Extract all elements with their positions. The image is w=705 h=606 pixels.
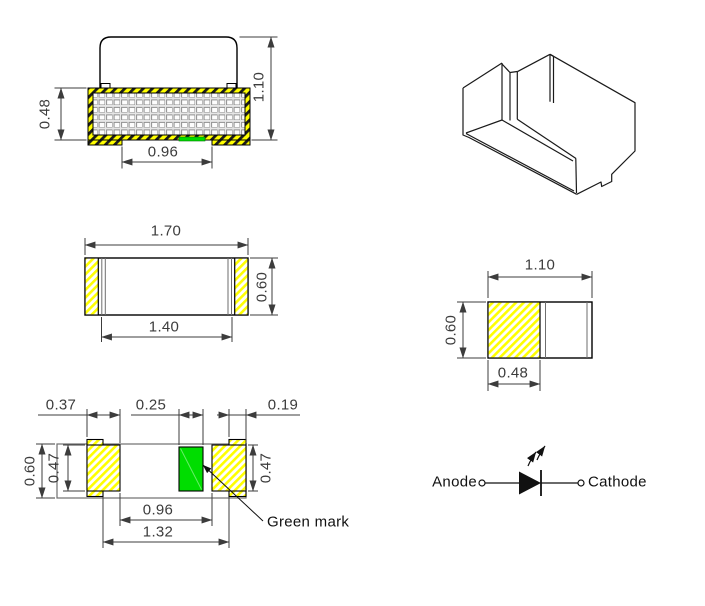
- anode-terminal-dot: [479, 480, 485, 486]
- top-terminal-left: [86, 259, 99, 315]
- side-terminal-region: [489, 303, 540, 358]
- anode-label: Anode: [432, 474, 477, 491]
- side-dim-length-label: 1.10: [525, 257, 555, 274]
- cathode-terminal-dot: [578, 480, 584, 486]
- bottom-dim-047-right-lines: [248, 445, 258, 491]
- front-dim-total-height-label: 1.10: [251, 72, 268, 102]
- bottom-dim-terminal-span-label: 1.32: [143, 524, 173, 541]
- led-symbol-drawing: [479, 446, 584, 496]
- green-mark-label: Green mark: [267, 514, 349, 531]
- top-dim-170-lines: [85, 238, 248, 255]
- bottom-dim-pad-height-left-label: 0.47: [46, 453, 63, 483]
- side-dim-060-lines: [457, 302, 486, 358]
- side-dim-terminal-width-label: 0.48: [498, 365, 528, 382]
- cathode-label: Cathode: [588, 474, 647, 491]
- front-emitter-grid: [93, 93, 245, 135]
- technical-drawing-canvas: [0, 0, 705, 606]
- top-view-drawing: [85, 238, 278, 342]
- front-green-mark: [179, 137, 205, 141]
- bottom-dim-025-lines: [131, 409, 203, 445]
- top-body-outline: [85, 258, 248, 315]
- front-dim-048-lines: [55, 88, 86, 140]
- bottom-dim-037-lines: [38, 409, 120, 443]
- top-dim-length-label: 1.70: [151, 223, 181, 240]
- isometric-view-drawing: [463, 54, 635, 194]
- front-pad-left: [88, 140, 122, 145]
- top-dim-body-length-label: 1.40: [149, 319, 179, 336]
- front-dim-pad-gap-label: 0.96: [148, 144, 178, 161]
- front-dim-terminal-height-label: 0.48: [37, 99, 54, 129]
- side-dim-110-lines: [488, 271, 592, 298]
- bottom-pad-left: [87, 445, 120, 491]
- bottom-dim-pad-gap-label: 0.96: [143, 502, 173, 519]
- bottom-pad-right: [212, 445, 246, 491]
- front-pad-right: [212, 140, 250, 145]
- bottom-dim-019-lines: [217, 409, 300, 443]
- side-dim-height-label: 0.60: [443, 315, 460, 345]
- bottom-dim-body-width-label: 0.60: [22, 456, 39, 486]
- bottom-dim-wrap-width-label: 0.19: [268, 397, 298, 414]
- bottom-dim-pad-width-label: 0.37: [46, 397, 76, 414]
- bottom-dim-pad-height-right-label: 0.47: [258, 453, 275, 483]
- top-dim-width-label: 0.60: [254, 272, 271, 302]
- top-terminal-right: [235, 259, 248, 315]
- diode-triangle: [519, 472, 541, 495]
- technical-drawing-page: 0.48 1.10 0.96 1.70 0.60 1.40 1.10 0.60 …: [0, 0, 705, 606]
- bottom-dim-mark-width-label: 0.25: [136, 397, 166, 414]
- light-emission-arrows: [528, 446, 545, 466]
- front-body-outline: [100, 37, 237, 90]
